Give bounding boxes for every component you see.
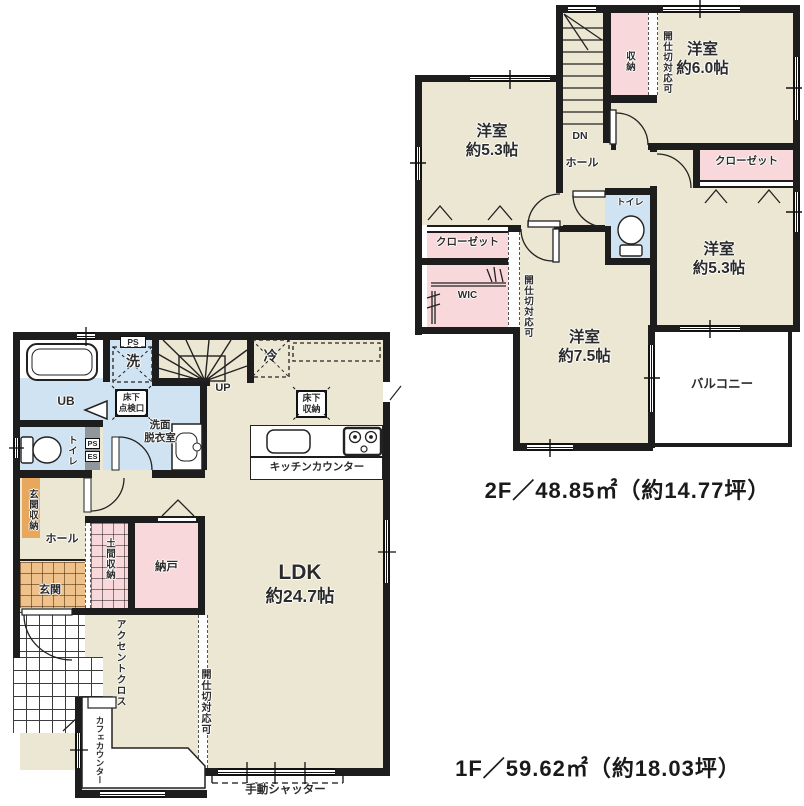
f2-down-label: DN xyxy=(564,130,596,143)
f1-wall-nando-bottom xyxy=(85,608,205,615)
f1-unit-bath-label: UB xyxy=(44,394,88,409)
f1-gap-hall-doors xyxy=(92,470,152,478)
f1-cafe-counter-label: カフェカウンター xyxy=(92,710,105,790)
f1-fridge-label: 冷 xyxy=(260,348,281,366)
f2-wall-right xyxy=(793,5,800,332)
f2-wall-stair-right xyxy=(603,12,611,143)
floor-storage-line2: 収納 xyxy=(298,404,325,415)
f1-partition-label: 開仕切対応可 xyxy=(195,658,210,746)
f1-window-shutter xyxy=(218,768,335,776)
f1-floor-storage-label: 床下 収納 xyxy=(298,393,325,416)
f2-gap-room60-door xyxy=(616,143,648,150)
f2-window-60-right xyxy=(793,57,800,120)
f2-closet-west-label: クローゼット xyxy=(427,236,508,249)
f2-room-south75-label: 洋室 約7.5帖 xyxy=(522,328,647,367)
f2-partition-west-label: 開仕切対応可 xyxy=(520,262,533,350)
f1-ldk-label: LDK 約24.7帖 xyxy=(235,560,365,608)
f1-wall-ub-divider xyxy=(103,332,110,382)
f1-entrance-label: 玄関 xyxy=(28,584,72,598)
floor-hatch-line2: 点検口 xyxy=(116,403,147,414)
f1-bath-floor xyxy=(20,340,105,380)
f2-wall-wic-bottom xyxy=(415,327,515,334)
f2-stair-column-floor xyxy=(563,12,605,232)
f1-genkan-step xyxy=(20,559,85,561)
f2-room-west53-label: 洋室 約5.3帖 xyxy=(432,122,552,161)
f2-window-53b-bottom xyxy=(680,325,740,332)
f1-washroom-label: 洗面 脱衣室 xyxy=(124,419,196,445)
f1-wall-stair-right xyxy=(247,332,254,383)
f1-shutter-bracket-ends xyxy=(212,775,343,783)
room-name: 洋室 xyxy=(432,122,552,141)
f1-hall-label: ホール xyxy=(36,533,88,547)
f2-vent-stair-top xyxy=(568,5,596,13)
f2-rail-balcony-right xyxy=(788,332,792,446)
f2-partition-north-label: 開仕切対応可 xyxy=(659,20,672,105)
f1-entrance-storage-label: 玄関収納 xyxy=(24,483,38,537)
f1-es-label: ES xyxy=(86,452,99,461)
room-size: 約5.3帖 xyxy=(432,141,552,160)
f1-ps-top-label: PS xyxy=(121,337,145,348)
f1-porch-tiles-b xyxy=(13,657,103,720)
f1-gap-kitchen-door xyxy=(383,382,390,402)
f2-gap-hall75-door xyxy=(521,225,554,232)
f1-kitchen-counter-label: キッチンカウンター xyxy=(252,461,382,474)
f2-rail-balcony-bottom xyxy=(655,443,792,447)
f2-window-left xyxy=(415,147,422,180)
f2-storage-label: 収納 xyxy=(621,32,635,90)
f1-counter-divider xyxy=(250,456,383,458)
f2-wall-toilet-top xyxy=(611,188,650,195)
f2-window-75-bottom xyxy=(527,443,573,451)
f1-gap-nando-door xyxy=(158,516,196,523)
f1-window-bottom-left xyxy=(100,790,165,798)
floor-storage-line1: 床下 xyxy=(298,393,325,404)
f1-window-toilet-left xyxy=(13,438,20,458)
f1-wall-washroom-right xyxy=(200,383,207,470)
f1-accent-cloth-label: アクセントクロス xyxy=(110,615,125,710)
f1-storeroom-label: 納戸 xyxy=(139,560,194,574)
f1-wall-porch-stub-left xyxy=(13,608,20,615)
ldk-size: 約24.7帖 xyxy=(235,586,365,608)
f2-gap-53b-door xyxy=(650,152,657,186)
f2-window-60-top xyxy=(663,5,740,13)
washroom-line2: 脱衣室 xyxy=(124,432,196,445)
f2-gap-53a-door xyxy=(556,193,563,226)
f2-toilet-label: トイレ xyxy=(609,197,651,208)
f1-wall-washer-right xyxy=(152,332,159,382)
f2-closet-west-track xyxy=(427,225,508,233)
f1-porch-tiles-a xyxy=(13,612,85,657)
f1-shutter-label: 手動シャッター xyxy=(228,783,343,797)
ldk-name: LDK xyxy=(235,560,365,586)
room-size: 約7.5帖 xyxy=(522,347,647,366)
f1-up-label: UP xyxy=(208,382,238,396)
f2-window-balcony-left xyxy=(648,345,655,412)
f2-wall-75-left xyxy=(513,327,520,451)
f2-wall-closet-divider xyxy=(422,258,508,265)
f2-window-53a-top xyxy=(470,75,550,82)
f2-window-53b-right xyxy=(793,192,800,232)
f2-hall-label: ホール xyxy=(556,157,608,171)
f2-closet-east-track xyxy=(700,180,793,188)
f1-ps-label: PS xyxy=(86,439,99,448)
room-name: 洋室 xyxy=(660,240,778,259)
f1-floor-hatch-label: 床下 点検口 xyxy=(116,392,147,413)
f1-dirt-floor-storage-label: 土間収納 xyxy=(102,527,115,591)
f1-wall-toilet-top xyxy=(13,420,103,427)
f1-porch-tiles-c xyxy=(13,720,80,733)
f1-wall-doma-divider xyxy=(128,516,135,608)
f1-vent-bath-top xyxy=(77,332,95,340)
floor1-title: 1F／59.62㎡（約18.03坪） xyxy=(398,751,798,783)
washroom-line1: 洗面 xyxy=(124,419,196,432)
f1-wall-nando-right xyxy=(198,516,205,615)
f1-toilet-label: トイレ xyxy=(63,430,77,472)
f1-window-left-lower xyxy=(75,733,82,768)
f2-wall-toilet-bottom xyxy=(605,258,657,265)
f2-wall-left xyxy=(415,75,422,335)
floor2-title: 2F／48.85㎡（約14.77坪） xyxy=(450,473,804,505)
room-name: 洋室 xyxy=(522,328,647,347)
f1-kitchen-door-mark xyxy=(390,386,401,400)
f2-wall-closet-east-left xyxy=(693,150,700,188)
floor-plan-canvas: 洋室 約5.3帖 洋室 約6.0帖 洋室 約5.3帖 洋室 約7.5帖 収納 開… xyxy=(0,0,804,806)
f1-washer-label: 洗 xyxy=(121,353,145,371)
f1-window-ldk-right xyxy=(383,520,390,583)
f2-partition-west-strip xyxy=(508,232,520,330)
f2-wic-label: WIC xyxy=(427,290,508,303)
f2-room-east53-label: 洋室 約5.3帖 xyxy=(660,240,778,279)
f2-closet-east-label: クローゼット xyxy=(700,155,793,168)
f1-wall-top xyxy=(13,332,390,340)
room-size: 約5.3帖 xyxy=(660,259,778,278)
f2-wall-storage-bottom xyxy=(603,95,657,103)
floor-hatch-line1: 床下 xyxy=(116,392,147,403)
f2-balcony-label: バルコニー xyxy=(658,377,786,393)
f1-wall-porch-stub-right xyxy=(72,608,85,615)
